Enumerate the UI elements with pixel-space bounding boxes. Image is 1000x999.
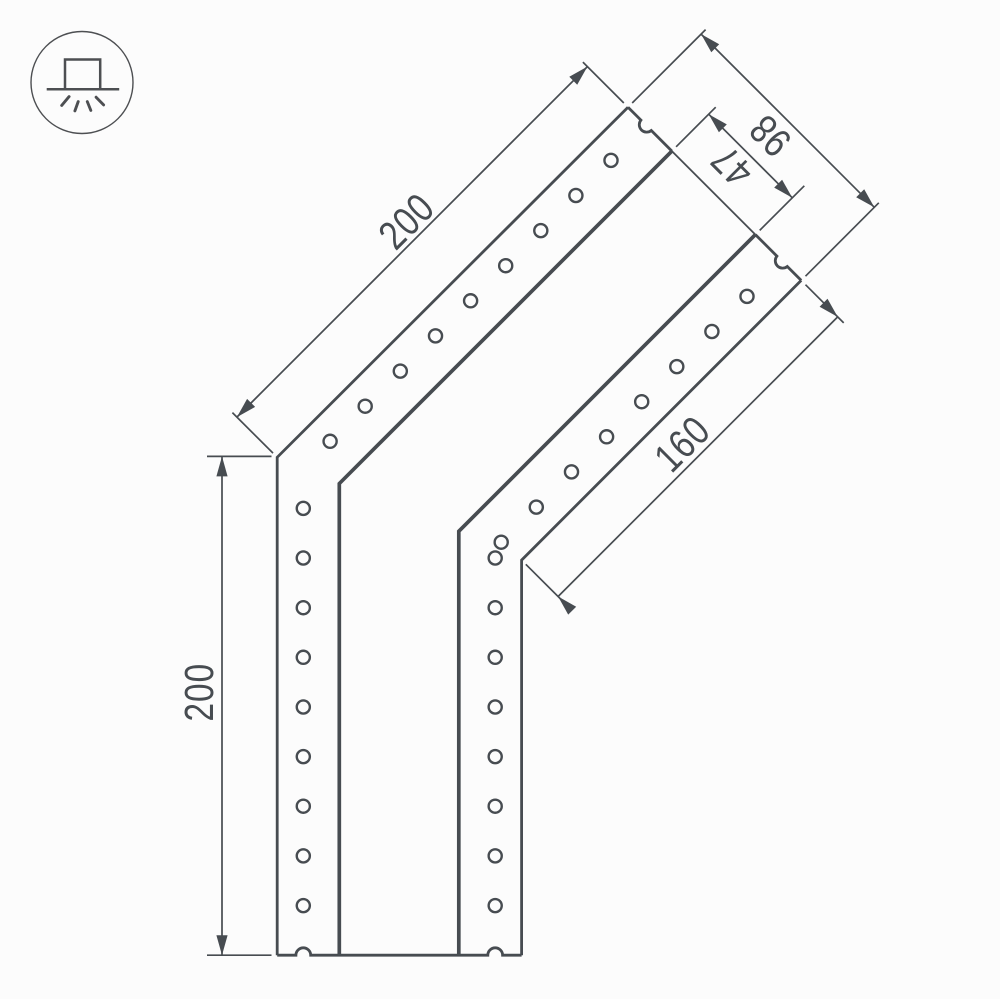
svg-text:200: 200 [176,663,222,722]
